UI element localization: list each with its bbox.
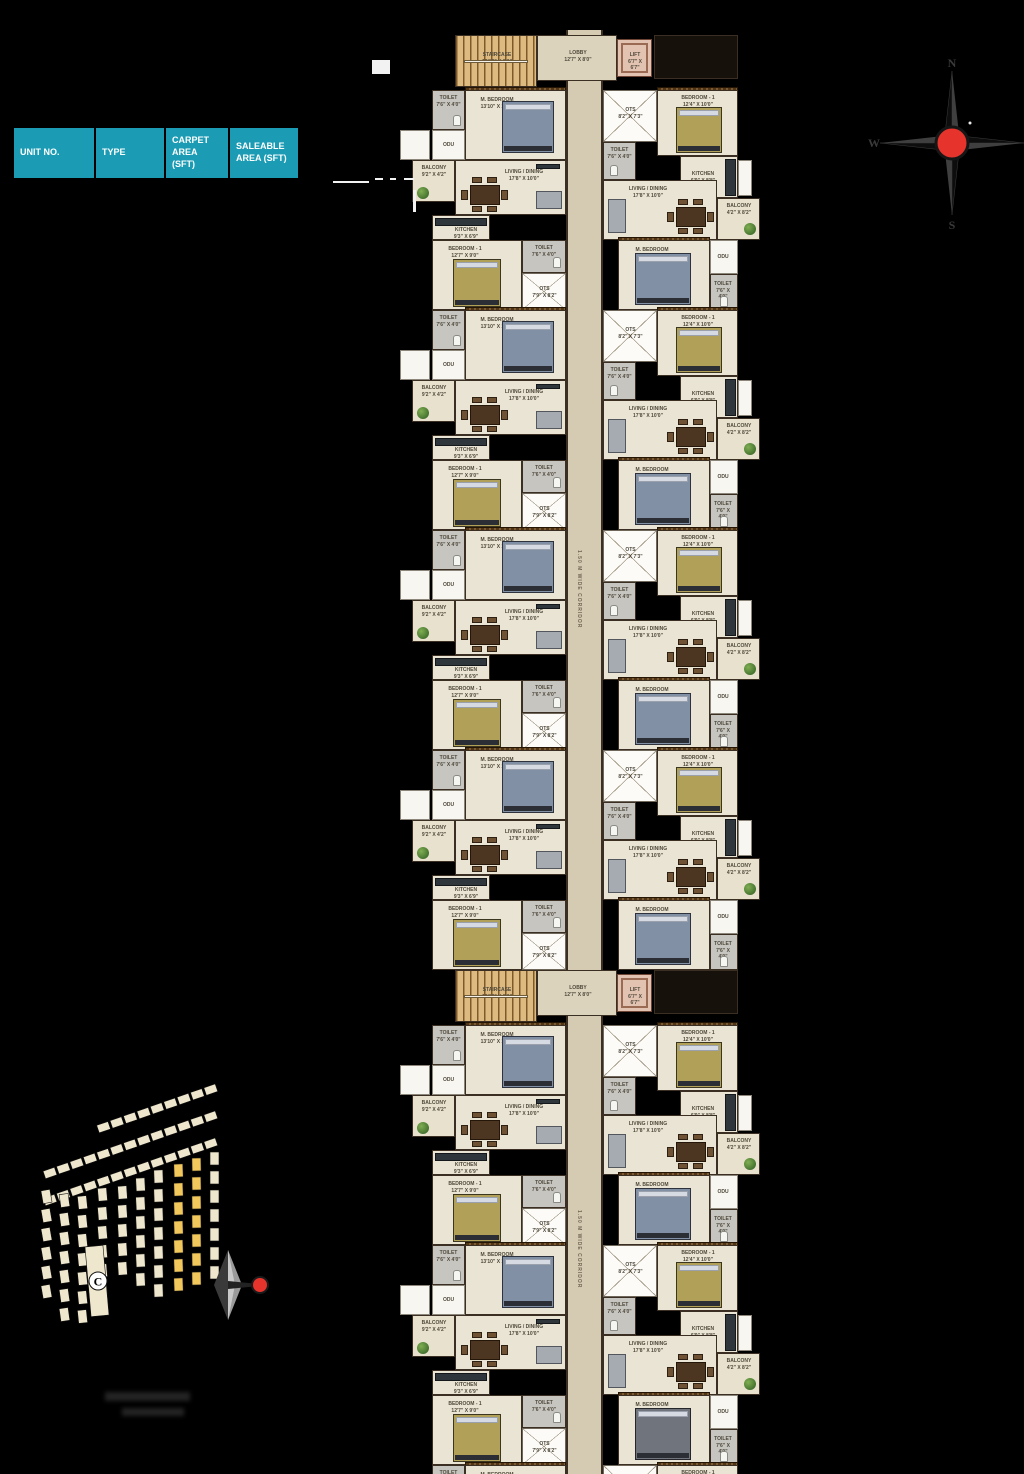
bed-icon	[453, 699, 501, 747]
keyplan-block	[154, 1208, 163, 1221]
chair-icon	[472, 426, 482, 432]
chair-icon	[693, 1134, 703, 1140]
room-label: LIVING / DINING 17'8" X 10'0"	[488, 1104, 560, 1117]
chair-icon	[678, 1354, 688, 1360]
keyplan-block	[174, 1240, 183, 1253]
dining-table-icon	[470, 405, 500, 425]
pillow-icon	[638, 476, 688, 482]
room-balcony_l: BALCONY 9'2" X 4'2"	[412, 820, 455, 862]
room-label: KITCHEN 9'3" X 6'9"	[445, 447, 487, 460]
bed-icon	[453, 259, 501, 307]
pillow-icon	[505, 1039, 551, 1045]
exterior-ledge	[738, 820, 752, 856]
room-ots_a: OTS 8'2" X 7'3"	[603, 750, 657, 802]
chair-icon	[693, 1163, 703, 1169]
room-odu: ODU	[432, 1285, 465, 1315]
bed-icon	[635, 693, 691, 745]
room-balcony_l: BALCONY 9'2" X 4'2"	[412, 380, 455, 422]
room-toilet: TOILET 7'6" X 4'0"	[432, 1465, 465, 1474]
bed-icon	[676, 1262, 722, 1308]
room-bedroom1_l: BEDROOM - 1 12'7" X 9'0"	[432, 1175, 522, 1245]
room-balcony_l: BALCONY 9'2" X 4'2"	[412, 1315, 455, 1357]
bed-foot	[678, 366, 720, 371]
bed-foot	[455, 300, 499, 305]
blurred-caption	[122, 1408, 184, 1416]
chair-icon	[487, 206, 497, 212]
room-toilet: TOILET 7'6" X 4'0"	[522, 1395, 566, 1428]
chair-icon	[678, 1383, 688, 1389]
chair-icon	[693, 639, 703, 645]
keyplan-block	[192, 1158, 201, 1171]
room-ots_b: OTS 7'9" X 8'2"	[522, 493, 566, 530]
room-living: LIVING / DINING 17'8" X 10'0"	[455, 600, 566, 655]
room-label: STAIRCASE 12'10" X 8'0"	[470, 52, 524, 65]
room-label: ODU	[711, 1189, 735, 1196]
plant-icon	[417, 1122, 429, 1134]
room-label: OTS 7'9" X 8'2"	[526, 726, 563, 739]
room-staircase: STAIRCASE 12'10" X 8'0"	[455, 35, 537, 87]
keyplan-block	[56, 1163, 70, 1174]
room-label: TOILET 7'6" X 4'0"	[433, 1250, 464, 1263]
chair-icon	[678, 859, 688, 865]
room-m_bedroom: M. BEDROOM 13'10" X 10'0"	[618, 1175, 710, 1245]
corridor-label: 1.50 M WIDE CORRIDOR	[576, 1210, 582, 1340]
room-label: LIVING / DINING 17'8" X 10'0"	[488, 389, 560, 402]
keyplan-block	[164, 1098, 178, 1109]
keyplan-block	[150, 1157, 164, 1168]
bed-icon	[635, 913, 691, 965]
toilet-icon	[453, 115, 461, 126]
keyplan-block	[177, 1120, 191, 1131]
pillow-icon	[638, 916, 688, 922]
room-kitchen_l: KITCHEN 9'3" X 6'9"	[432, 655, 490, 680]
kitchen-counter	[435, 1153, 487, 1161]
chair-icon	[472, 177, 482, 183]
room-label: LOBBY 12'7" X 8'0"	[558, 985, 598, 998]
chair-icon	[461, 410, 468, 420]
sofa-icon	[608, 199, 626, 233]
room-label: TOILET 7'6" X 4'0"	[604, 1082, 635, 1095]
room-label: BEDROOM - 1 12'7" X 9'0"	[439, 466, 491, 479]
exterior-ledge	[400, 790, 430, 820]
exterior-ledge	[738, 380, 752, 416]
bed-foot	[678, 1081, 720, 1086]
dimension-dash	[404, 178, 414, 180]
toilet-icon	[610, 825, 618, 836]
room-label: BEDROOM - 1 12'7" X 9'0"	[439, 246, 491, 259]
room-label: BEDROOM - 1 12'7" X 9'0"	[439, 686, 491, 699]
dimension-line	[333, 181, 369, 183]
bed-icon	[453, 479, 501, 527]
room-toilet: TOILET 7'6" X 4'0"	[522, 680, 566, 713]
keyplan-block	[154, 1170, 163, 1183]
keyplan-block	[59, 1212, 70, 1226]
chair-icon	[693, 1354, 703, 1360]
room-living: LIVING / DINING 17'8" X 10'0"	[455, 820, 566, 875]
keyplan-block	[154, 1284, 163, 1297]
sofa-icon	[536, 191, 562, 209]
pillow-icon	[679, 770, 719, 776]
chair-icon	[487, 866, 497, 872]
toilet-icon	[553, 697, 561, 708]
room-label: OTS 7'9" X 8'2"	[526, 506, 563, 519]
dimension-tick	[413, 190, 416, 212]
room-label: BALCONY 9'2" X 4'2"	[415, 1100, 453, 1113]
room-label: ODU	[711, 474, 735, 481]
keyplan-block	[164, 1152, 178, 1163]
chair-icon	[487, 837, 497, 843]
keyplan-block	[123, 1139, 137, 1150]
unit-table-header: UNIT NO. TYPE CARPET AREA (SFT) SALEABLE…	[14, 128, 298, 178]
bed-icon	[676, 547, 722, 593]
chair-icon	[667, 1367, 674, 1377]
bed-foot	[504, 146, 552, 151]
pillow-icon	[679, 110, 719, 116]
exterior-ledge	[738, 160, 752, 196]
keyplan-block	[192, 1234, 201, 1247]
chair-icon	[501, 630, 508, 640]
keyplan-block	[118, 1262, 128, 1276]
kitchen-counter	[435, 658, 487, 666]
keyplan-block	[41, 1208, 52, 1222]
bed-icon	[502, 541, 554, 593]
chair-icon	[487, 617, 497, 623]
bed-foot	[678, 146, 720, 151]
room-odu: ODU	[710, 680, 738, 714]
sofa-icon	[536, 1346, 562, 1364]
room-balcony_r: BALCONY 4'2" X 8'2"	[717, 1353, 760, 1395]
room-label: KITCHEN 9'3" X 6'9"	[445, 1382, 487, 1395]
room-odu: ODU	[432, 350, 465, 380]
sofa-icon	[536, 631, 562, 649]
room-toilet: TOILET 7'6" X 4'0"	[603, 582, 636, 620]
chair-icon	[693, 1383, 703, 1389]
keyplan-block	[70, 1185, 84, 1196]
room-bedroom1_r: BEDROOM - 1 12'4" X 10'0"	[657, 1465, 738, 1474]
room-living: LIVING / DINING 17'8" X 10'0"	[455, 160, 566, 215]
exterior-ledge	[738, 1315, 752, 1351]
room-label: TOILET 7'6" X 4'0"	[433, 315, 464, 328]
room-bedroom1_r: BEDROOM - 1 12'4" X 10'0"	[657, 310, 738, 376]
chair-icon	[472, 1332, 482, 1338]
keyplan-block	[59, 1231, 70, 1245]
room-odu: ODU	[432, 130, 465, 160]
keyplan-block	[110, 1144, 124, 1155]
room-label: ODU	[711, 694, 735, 701]
toilet-icon	[610, 605, 618, 616]
pillow-icon	[505, 104, 551, 110]
keyplan-block	[192, 1196, 201, 1209]
room-bedroom1_l: BEDROOM - 1 12'7" X 9'0"	[432, 680, 522, 750]
room-label: OTS 8'2" X 7'3"	[609, 107, 652, 120]
room-m_bedroom: M. BEDROOM 13'10" X 10'0"	[465, 750, 566, 820]
keyplan-block	[154, 1227, 163, 1240]
room-toilet: TOILET 7'6" X 4'0"	[710, 934, 738, 970]
bed-foot	[455, 1455, 499, 1460]
chair-icon	[667, 432, 674, 442]
plant-icon	[417, 847, 429, 859]
room-m_bedroom: M. BEDROOM 13'10" X 10'0"	[465, 1025, 566, 1095]
table-header-unit-no: UNIT NO.	[14, 128, 94, 178]
chair-icon	[472, 1112, 482, 1118]
pillow-icon	[456, 482, 498, 488]
bed-foot	[678, 1301, 720, 1306]
keyplan-block	[174, 1202, 183, 1215]
chair-icon	[472, 1141, 482, 1147]
stair-rail	[464, 995, 528, 998]
keyplan-block	[77, 1234, 87, 1248]
room-kitchen_l: KITCHEN 9'3" X 6'9"	[432, 875, 490, 900]
room-ots_a: OTS 8'2" X 7'3"	[603, 1025, 657, 1077]
keyplan-block	[210, 1190, 219, 1203]
room-lift: LIFT 6'7" X 6'7"	[617, 974, 652, 1012]
room-living: LIVING / DINING 17'8" X 10'0"	[603, 180, 717, 240]
bed-icon	[676, 107, 722, 153]
bed-icon	[635, 473, 691, 525]
sofa-icon	[608, 859, 626, 893]
chair-icon	[501, 190, 508, 200]
tower-label: C	[94, 1275, 103, 1289]
bed-foot	[637, 1233, 689, 1238]
room-bedroom1_r: BEDROOM - 1 12'4" X 10'0"	[657, 1245, 738, 1311]
plant-icon	[744, 1158, 756, 1170]
keyplan-block	[154, 1246, 163, 1259]
bed-foot	[504, 1301, 552, 1306]
keyplan-compass	[214, 1250, 228, 1320]
room-label: BALCONY 4'2" X 8'2"	[720, 643, 758, 656]
room-m_bedroom: M. BEDROOM 13'10" X 10'0"	[465, 310, 566, 380]
chair-icon	[487, 177, 497, 183]
room-label: LIVING / DINING 17'8" X 10'0"	[488, 169, 560, 182]
room-label: BEDROOM - 1 12'4" X 10'0"	[672, 1470, 724, 1474]
room-toilet: TOILET 7'6" X 4'0"	[522, 240, 566, 273]
room-lift: LIFT 6'7" X 6'7"	[617, 39, 652, 77]
toilet-icon	[720, 1451, 728, 1462]
toilet-icon	[720, 956, 728, 967]
room-m_bedroom: M. BEDROOM 13'10" X 10'0"	[618, 240, 710, 310]
chair-icon	[693, 888, 703, 894]
room-kitchen_l: KITCHEN 9'3" X 6'9"	[432, 1150, 490, 1175]
room-label: STAIRCASE 12'10" X 8'0"	[470, 987, 524, 1000]
table-header-type: TYPE	[96, 128, 164, 178]
dining-table-icon	[470, 1340, 500, 1360]
room-m_bedroom: M. BEDROOM 13'10" X 10'0"	[465, 90, 566, 160]
chair-icon	[707, 212, 714, 222]
room-balcony_r: BALCONY 4'2" X 8'2"	[717, 858, 760, 900]
chair-icon	[487, 646, 497, 652]
bed-icon	[635, 1408, 691, 1460]
room-label: KITCHEN 9'3" X 6'9"	[445, 1162, 487, 1175]
dining-table-icon	[676, 1362, 706, 1382]
room-toilet: TOILET 7'6" X 4'0"	[432, 310, 465, 350]
exterior-ledge	[400, 1065, 430, 1095]
pillow-icon	[456, 262, 498, 268]
dining-table-icon	[470, 185, 500, 205]
bed-icon	[635, 253, 691, 305]
room-label: LIVING / DINING 17'8" X 10'0"	[488, 829, 560, 842]
toilet-icon	[453, 1270, 461, 1281]
keyplan-block	[118, 1186, 128, 1200]
room-bedroom1_r: BEDROOM - 1 12'4" X 10'0"	[657, 1025, 738, 1091]
wall-block	[654, 970, 738, 1014]
bed-icon	[453, 1414, 501, 1462]
room-living: LIVING / DINING 17'8" X 10'0"	[455, 1095, 566, 1150]
tv-unit	[536, 824, 560, 829]
pillow-icon	[638, 1411, 688, 1417]
bed-foot	[455, 1235, 499, 1240]
room-living: LIVING / DINING 17'8" X 10'0"	[603, 620, 717, 680]
plant-icon	[744, 443, 756, 455]
room-label: OTS 7'9" X 8'2"	[526, 1441, 563, 1454]
room-odu: ODU	[710, 460, 738, 494]
room-living: LIVING / DINING 17'8" X 10'0"	[603, 840, 717, 900]
plant-icon	[417, 1342, 429, 1354]
room-bedroom1_r: BEDROOM - 1 12'4" X 10'0"	[657, 750, 738, 816]
room-toilet: TOILET 7'6" X 4'0"	[710, 1209, 738, 1245]
toilet-icon	[553, 1192, 561, 1203]
keyplan-block	[77, 1310, 87, 1324]
room-label: TOILET 7'6" X 4'0"	[604, 147, 635, 160]
room-m_bedroom: M. BEDROOM 13'10" X 10'0"	[618, 900, 710, 970]
room-label: LIVING / DINING 17'8" X 10'0"	[612, 626, 684, 639]
keyplan-block	[210, 1209, 219, 1222]
room-label: BALCONY 4'2" X 8'2"	[720, 1358, 758, 1371]
room-toilet: TOILET 7'6" X 4'0"	[522, 460, 566, 493]
room-label: OTS 7'9" X 8'2"	[526, 946, 563, 959]
exterior-ledge	[400, 570, 430, 600]
room-label: BALCONY 9'2" X 4'2"	[415, 165, 453, 178]
bed-foot	[504, 366, 552, 371]
keyplan-block	[97, 1121, 111, 1132]
keyplan-block	[174, 1278, 183, 1291]
pillow-icon	[679, 1045, 719, 1051]
kitchen-counter	[725, 599, 736, 636]
dimension-dash	[375, 178, 383, 180]
tv-unit	[536, 384, 560, 389]
pillow-icon	[638, 1191, 688, 1197]
chair-icon	[678, 888, 688, 894]
keyplan-block	[97, 1148, 111, 1159]
room-label: BALCONY 9'2" X 4'2"	[415, 825, 453, 838]
bed-foot	[504, 1081, 552, 1086]
toilet-icon	[453, 555, 461, 566]
pillow-icon	[638, 696, 688, 702]
chair-icon	[678, 448, 688, 454]
kitchen-counter	[435, 1373, 487, 1381]
toilet-icon	[553, 917, 561, 928]
chair-icon	[501, 1345, 508, 1355]
keyplan-block	[41, 1189, 52, 1203]
room-balcony_r: BALCONY 4'2" X 8'2"	[717, 1133, 760, 1175]
room-label: OTS 8'2" X 7'3"	[609, 767, 652, 780]
sofa-icon	[608, 1134, 626, 1168]
chair-icon	[472, 646, 482, 652]
keyplan-block	[59, 1269, 70, 1283]
pillow-icon	[679, 550, 719, 556]
keyplan-block	[137, 1134, 151, 1145]
room-kitchen_l: KITCHEN 9'3" X 6'9"	[432, 435, 490, 460]
dining-table-icon	[676, 1142, 706, 1162]
dining-table-icon	[676, 207, 706, 227]
tv-unit	[536, 1319, 560, 1324]
keyplan-block	[137, 1161, 151, 1172]
keyplan-block	[210, 1247, 219, 1260]
room-label: OTS 8'2" X 7'3"	[609, 1042, 652, 1055]
pillow-icon	[679, 1265, 719, 1271]
room-bedroom1_r: BEDROOM - 1 12'4" X 10'0"	[657, 530, 738, 596]
blurred-caption	[105, 1392, 190, 1401]
sofa-icon	[536, 851, 562, 869]
keyplan-block	[150, 1130, 164, 1141]
room-ots_a: OTS 8'2" X 7'3"	[603, 1465, 657, 1474]
room-label: LIVING / DINING 17'8" X 10'0"	[612, 186, 684, 199]
room-balcony_l: BALCONY 9'2" X 4'2"	[412, 1095, 455, 1137]
toilet-icon	[720, 516, 728, 527]
compass-rose: N E S W	[867, 53, 1024, 233]
keyplan-block	[136, 1254, 146, 1267]
room-label: TOILET 7'6" X 4'0"	[604, 1302, 635, 1315]
room-m_bedroom: M. BEDROOM 13'10" X 10'0"	[618, 460, 710, 530]
stair-rail	[464, 60, 528, 63]
keyplan-block	[77, 1196, 87, 1210]
corridor	[566, 30, 603, 1474]
bed-foot	[504, 586, 552, 591]
keyplan-block	[190, 1116, 204, 1127]
room-label: BEDROOM - 1 12'7" X 9'0"	[439, 906, 491, 919]
keyplan-block	[190, 1089, 204, 1100]
pillow-icon	[456, 922, 498, 928]
chair-icon	[487, 397, 497, 403]
room-label: LIVING / DINING 17'8" X 10'0"	[488, 609, 560, 622]
bed-foot	[637, 1453, 689, 1458]
bed-icon	[502, 321, 554, 373]
keyplan-block	[192, 1272, 201, 1285]
chair-icon	[693, 228, 703, 234]
room-living: LIVING / DINING 17'8" X 10'0"	[455, 380, 566, 435]
table-header-saleable-area: SALEABLE AREA (SFT)	[230, 128, 298, 178]
exterior-ledge	[738, 1095, 752, 1131]
room-label: TOILET 7'6" X 4'0"	[433, 1470, 464, 1474]
plant-icon	[417, 187, 429, 199]
room-toilet: TOILET 7'6" X 4'0"	[710, 494, 738, 530]
kitchen-counter	[725, 159, 736, 196]
room-toilet: TOILET 7'6" X 4'0"	[432, 750, 465, 790]
sofa-icon	[608, 1354, 626, 1388]
chair-icon	[461, 850, 468, 860]
room-odu: ODU	[710, 900, 738, 934]
bed-icon	[502, 101, 554, 153]
chair-icon	[487, 426, 497, 432]
keyplan-block	[70, 1158, 84, 1169]
chair-icon	[501, 850, 508, 860]
bed-icon	[502, 761, 554, 813]
dining-table-icon	[470, 625, 500, 645]
plant-icon	[744, 663, 756, 675]
bed-foot	[637, 518, 689, 523]
room-label: ODU	[433, 802, 464, 809]
exterior-ledge	[400, 350, 430, 380]
keyplan-block	[59, 1288, 70, 1302]
room-living: LIVING / DINING 17'8" X 10'0"	[603, 400, 717, 460]
wall-block	[654, 35, 738, 79]
room-toilet: TOILET 7'6" X 4'0"	[603, 802, 636, 840]
chair-icon	[461, 630, 468, 640]
room-label: BALCONY 4'2" X 8'2"	[720, 423, 758, 436]
room-balcony_l: BALCONY 9'2" X 4'2"	[412, 160, 455, 202]
keyplan-block	[41, 1227, 52, 1241]
room-odu: ODU	[710, 1395, 738, 1429]
keyplan-block	[97, 1226, 107, 1240]
